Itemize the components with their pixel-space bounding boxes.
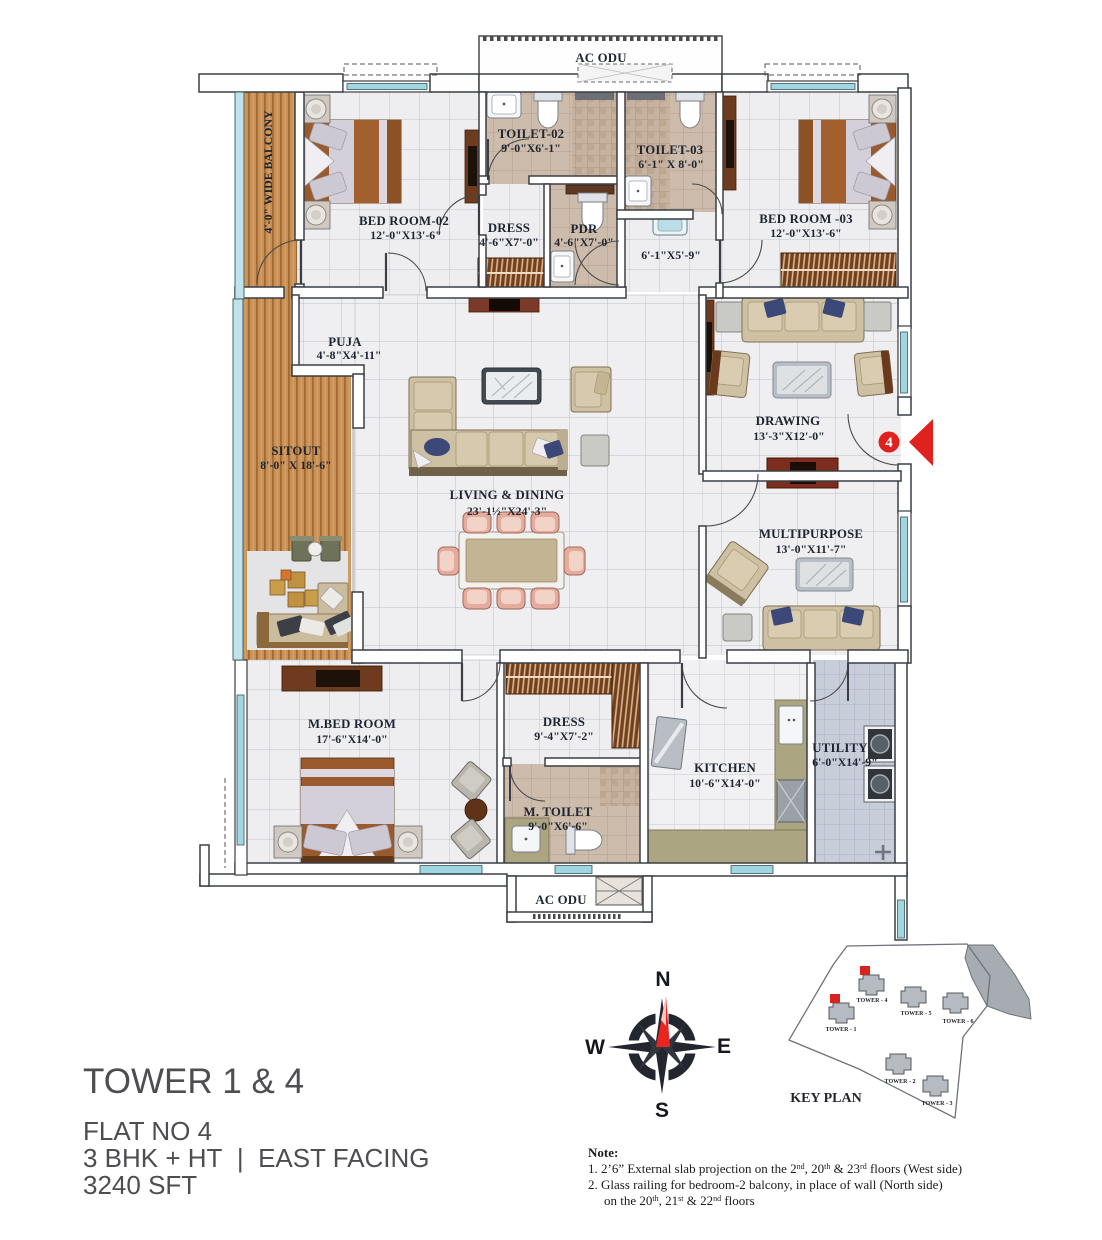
svg-text:4'-6"X7'-0": 4'-6"X7'-0" <box>554 235 614 249</box>
svg-text:UTILITY: UTILITY <box>812 741 867 755</box>
svg-text:KEY PLAN: KEY PLAN <box>790 1091 861 1106</box>
svg-text:9'-0"X6'-6": 9'-0"X6'-6" <box>528 819 588 833</box>
svg-text:TOWER - 4: TOWER - 4 <box>857 998 888 1004</box>
svg-text:TOWER - 5: TOWER - 5 <box>901 1011 932 1017</box>
svg-text:SITOUT: SITOUT <box>271 444 321 458</box>
svg-text:9'-4"X7'-2": 9'-4"X7'-2" <box>534 729 594 743</box>
svg-text:FLAT NO 4: FLAT NO 4 <box>83 1116 212 1146</box>
svg-text:TOILET-03: TOILET-03 <box>637 143 704 157</box>
svg-text:2. Glass railing for bedroom-2: 2. Glass railing for bedroom-2 balcony, … <box>588 1177 943 1192</box>
svg-text:S: S <box>655 1099 669 1122</box>
svg-text:M.BED ROOM: M.BED ROOM <box>308 717 396 731</box>
svg-text:4: 4 <box>885 435 893 451</box>
svg-text:3240 SFT: 3240 SFT <box>83 1170 197 1200</box>
svg-text:6'-1" X 8'-0": 6'-1" X 8'-0" <box>638 157 704 171</box>
svg-text:PUJA: PUJA <box>328 335 362 349</box>
svg-text:E: E <box>717 1035 731 1058</box>
svg-text:9'-0"X6'-1": 9'-0"X6'-1" <box>501 141 561 155</box>
svg-text:4'-8"X4'-11": 4'-8"X4'-11" <box>317 348 382 362</box>
svg-text:13'-3"X12'-0": 13'-3"X12'-0" <box>753 429 824 443</box>
svg-text:17'-6"X14'-0": 17'-6"X14'-0" <box>316 732 387 746</box>
svg-text:N: N <box>655 968 670 991</box>
svg-text:TOWER - 3: TOWER - 3 <box>922 1101 953 1107</box>
svg-text:TOILET-02: TOILET-02 <box>498 127 565 141</box>
svg-text:10'-6"X14'-0": 10'-6"X14'-0" <box>689 776 760 790</box>
svg-text:W: W <box>585 1036 605 1059</box>
svg-text:6'-0"X14'-9": 6'-0"X14'-9" <box>812 755 878 769</box>
svg-text:12'-0"X13'-6": 12'-0"X13'-6" <box>370 228 441 242</box>
svg-text:8'-0" X 18'-6": 8'-0" X 18'-6" <box>260 458 331 472</box>
svg-text:1. 2’6” External slab projecti: 1. 2’6” External slab projection on the … <box>588 1161 962 1176</box>
svg-text:6'-1"X5'-9": 6'-1"X5'-9" <box>641 248 701 262</box>
svg-text:13'-0"X11'-7": 13'-0"X11'-7" <box>776 542 847 556</box>
svg-text:4'-0" WIDE BALCONY: 4'-0" WIDE BALCONY <box>261 110 275 233</box>
svg-text:Note:: Note: <box>588 1145 618 1160</box>
svg-text:3 BHK + HT | EAST FACING: 3 BHK + HT | EAST FACING <box>83 1143 430 1173</box>
svg-text:MULTIPURPOSE: MULTIPURPOSE <box>759 527 863 541</box>
svg-text:TOWER - 6: TOWER - 6 <box>943 1019 974 1025</box>
svg-text:23'-1½"X24'-3": 23'-1½"X24'-3" <box>467 504 547 518</box>
svg-text:AC ODU: AC ODU <box>575 51 626 65</box>
svg-text:LIVING & DINING: LIVING & DINING <box>450 488 565 502</box>
svg-text:4'-6"X7'-0": 4'-6"X7'-0" <box>479 235 539 249</box>
svg-text:DRESS: DRESS <box>543 715 585 729</box>
svg-text:TOWER 1 & 4: TOWER 1 & 4 <box>83 1062 304 1101</box>
svg-text:PDR: PDR <box>571 222 598 236</box>
svg-text:TOWER - 1: TOWER - 1 <box>826 1027 857 1033</box>
svg-text:AC ODU: AC ODU <box>535 893 586 907</box>
svg-text:KITCHEN: KITCHEN <box>694 761 756 775</box>
svg-text:BED ROOM-02: BED ROOM-02 <box>359 214 449 228</box>
svg-text:DRESS: DRESS <box>488 221 530 235</box>
svg-text:12'-0"X13'-6": 12'-0"X13'-6" <box>770 226 841 240</box>
svg-text:DRAWING: DRAWING <box>756 414 821 428</box>
svg-text:TOWER - 2: TOWER - 2 <box>885 1079 916 1085</box>
svg-text:BED ROOM -03: BED ROOM -03 <box>759 212 852 226</box>
svg-text:M. TOILET: M. TOILET <box>524 805 593 819</box>
